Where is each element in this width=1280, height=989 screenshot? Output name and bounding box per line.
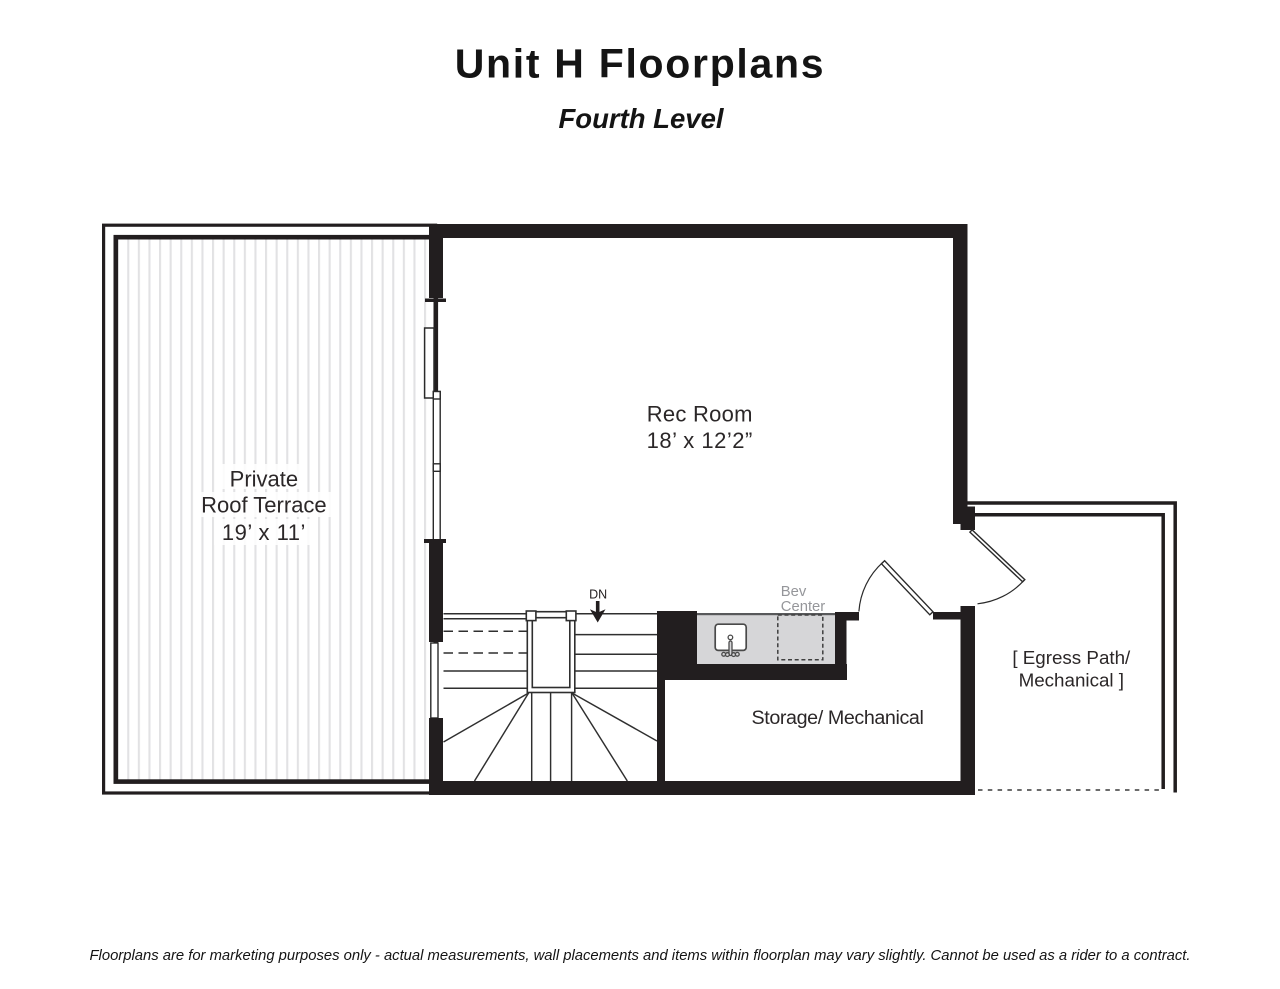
svg-text:19’ x 11’: 19’ x 11’ xyxy=(222,520,306,545)
svg-text:DN: DN xyxy=(589,588,607,602)
svg-text:Roof Terrace: Roof Terrace xyxy=(201,492,327,517)
svg-text:Unit H Floorplans: Unit H Floorplans xyxy=(455,41,826,87)
svg-text:Floorplans are for marketing p: Floorplans are for marketing purposes on… xyxy=(90,948,1191,964)
svg-text:18’ x 12’2”: 18’ x 12’2” xyxy=(647,428,753,453)
svg-text:Rec Room: Rec Room xyxy=(647,401,753,426)
svg-text:Private: Private xyxy=(230,467,298,492)
svg-text:Center: Center xyxy=(781,599,825,615)
svg-text:Fourth Level: Fourth Level xyxy=(558,103,724,134)
svg-text:Storage/ Mechanical: Storage/ Mechanical xyxy=(752,707,924,729)
svg-text:[ Egress Path/: [ Egress Path/ xyxy=(1012,647,1131,668)
svg-text:Bev: Bev xyxy=(781,584,807,600)
svg-text:Mechanical ]: Mechanical ] xyxy=(1019,670,1124,691)
